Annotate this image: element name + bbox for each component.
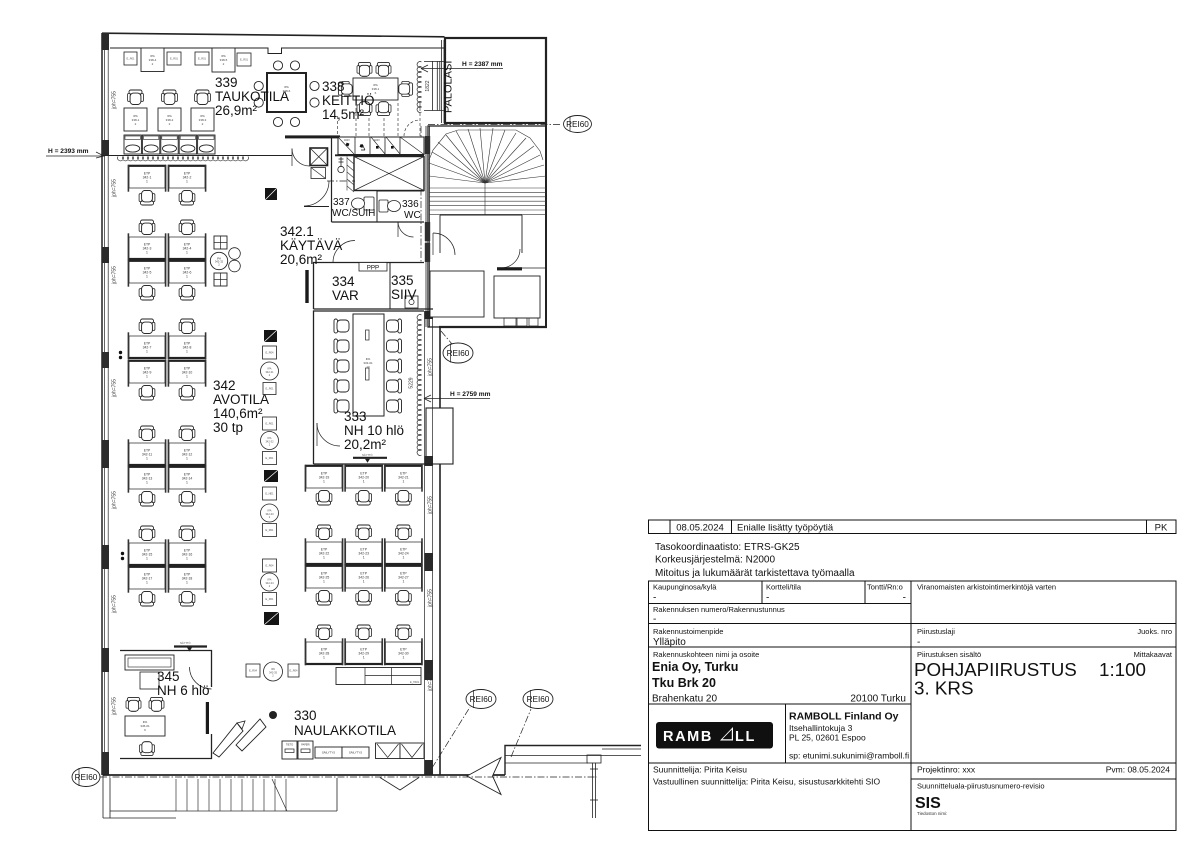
svg-text:REI60: REI60 [527, 695, 550, 704]
svg-text:E_HK01: E_HK01 [410, 681, 420, 684]
svg-text:REI60: REI60 [75, 773, 98, 782]
svg-text:337: 337 [333, 197, 350, 208]
svg-text:1: 1 [186, 375, 188, 379]
svg-text:H = 2387 mm: H = 2387 mm [462, 61, 503, 68]
svg-text:1: 1 [363, 480, 365, 484]
svg-text:1: 1 [402, 656, 404, 660]
svg-text:Vastuullinen suunnittelija: Pi: Vastuullinen suunnittelija: Pirita Keisu… [653, 777, 880, 787]
svg-text:Rakennuskohteen nimi ja osoite: Rakennuskohteen nimi ja osoite [653, 650, 759, 659]
svg-text:1: 1 [402, 580, 404, 584]
svg-text:Mittakaavat: Mittakaavat [1134, 650, 1173, 659]
svg-text:PPP: PPP [367, 264, 379, 271]
svg-text:1: 1 [146, 275, 148, 279]
svg-text:1: 1 [363, 556, 365, 560]
svg-text:Itsehallintokuja 3: Itsehallintokuja 3 [789, 723, 853, 733]
svg-text:KÄYTÄVÄ: KÄYTÄVÄ [280, 238, 342, 253]
svg-text:E_R04: E_R04 [249, 669, 257, 673]
svg-text:NH 6 hlö: NH 6 hlö [157, 683, 210, 698]
svg-text:1: 1 [146, 481, 148, 485]
svg-text:Ylläpito: Ylläpito [653, 637, 686, 648]
svg-text:jph=755: jph=755 [428, 673, 434, 692]
svg-text:Tasokoordinaatisto: ETRS-GK25: Tasokoordinaatisto: ETRS-GK25 [655, 542, 800, 553]
svg-text:NAULAKKOTILA: NAULAKKOTILA [294, 723, 396, 738]
svg-text:jph=755: jph=755 [112, 595, 118, 614]
svg-text:Rakennustoimenpide: Rakennustoimenpide [653, 627, 723, 636]
svg-text:339: 339 [215, 75, 238, 90]
svg-text:1: 1 [146, 557, 148, 561]
svg-text:Juoks. nro: Juoks. nro [1137, 627, 1172, 636]
svg-text:E_R01: E_R01 [266, 387, 274, 391]
svg-text:Piirustuksen sisältö: Piirustuksen sisältö [917, 650, 981, 659]
svg-text:10: 10 [366, 365, 370, 369]
svg-text:26,9m²: 26,9m² [215, 103, 258, 118]
svg-text:1: 1 [323, 480, 325, 484]
svg-text:345: 345 [157, 669, 180, 684]
svg-text:Brahenkatu 20: Brahenkatu 20 [652, 694, 717, 705]
svg-text:jph=755: jph=755 [428, 358, 434, 377]
svg-text:E_NE1: E_NE1 [265, 492, 274, 496]
svg-text:5229: 5229 [409, 377, 415, 388]
svg-text:E_R04: E_R04 [266, 351, 274, 355]
svg-text:IPA: IPA [268, 509, 272, 513]
svg-text:SIS: SIS [915, 795, 941, 812]
svg-text:IPA: IPA [271, 667, 275, 671]
svg-text:1: 1 [146, 251, 148, 255]
svg-text:334: 334 [332, 274, 355, 289]
svg-text:LL: LL [735, 729, 756, 745]
svg-text:20,6m²: 20,6m² [280, 252, 323, 267]
svg-text:-: - [766, 593, 769, 604]
svg-text:Pvm: 08.05.2024: Pvm: 08.05.2024 [1106, 765, 1171, 775]
svg-text:E_R01: E_R01 [266, 422, 274, 426]
svg-text:20,2m²: 20,2m² [344, 437, 387, 452]
svg-text:1: 1 [186, 457, 188, 461]
svg-text:1: 1 [186, 350, 188, 354]
svg-text:NÄYTTÖ: NÄYTTÖ [362, 453, 373, 457]
svg-text:PK: PK [1155, 523, 1168, 534]
svg-text:WC: WC [404, 210, 421, 221]
svg-text:1: 1 [402, 556, 404, 560]
svg-text:E_R01: E_R01 [266, 528, 274, 532]
svg-text:SÄILYTYS: SÄILYTYS [349, 751, 362, 755]
svg-text:WC/SUIH: WC/SUIH [332, 208, 375, 219]
svg-text:RAMBOLL Finland Oy: RAMBOLL Finland Oy [789, 711, 899, 723]
svg-text:jph=755: jph=755 [112, 697, 118, 716]
svg-text:30 tp: 30 tp [213, 420, 243, 435]
svg-text:NÄYTTÖ: NÄYTTÖ [180, 641, 191, 645]
svg-text:1: 1 [186, 275, 188, 279]
svg-text:1: 1 [323, 556, 325, 560]
svg-text:Tku Brk 20: Tku Brk 20 [652, 676, 716, 690]
svg-text:-: - [917, 637, 920, 648]
svg-text:1: 1 [146, 375, 148, 379]
svg-text:14,5m²: 14,5m² [322, 107, 365, 122]
svg-text:Enialle lisätty työpöytiä: Enialle lisätty työpöytiä [737, 523, 834, 534]
svg-text:jph=755: jph=755 [112, 179, 118, 198]
svg-text:NH 10 hlö: NH 10 hlö [344, 423, 404, 438]
svg-text:E_R01: E_R01 [170, 57, 178, 61]
svg-text:140,6m²: 140,6m² [213, 406, 263, 421]
svg-text:Viranomaisten arkistointimerki: Viranomaisten arkistointimerkintöjä vart… [917, 583, 1056, 592]
svg-text:jph=755: jph=755 [112, 266, 118, 285]
svg-text:jph=755: jph=755 [112, 379, 118, 398]
svg-text:Rakennuksen numero/Rakennustun: Rakennuksen numero/Rakennustunnus [653, 605, 785, 614]
svg-text:1: 1 [186, 557, 188, 561]
svg-text:SÄILYTYS: SÄILYTYS [322, 751, 335, 755]
svg-text:SIIV: SIIV [391, 287, 417, 302]
svg-text:IPA: IPA [268, 436, 272, 440]
svg-text:H = 2759 mm: H = 2759 mm [450, 391, 491, 398]
svg-text:1: 1 [363, 580, 365, 584]
svg-text:1:100: 1:100 [1099, 659, 1146, 680]
svg-text:1822: 1822 [425, 80, 431, 91]
svg-text:jph=755: jph=755 [428, 589, 434, 608]
svg-text:1: 1 [186, 251, 188, 255]
svg-text:jph=755: jph=755 [428, 496, 434, 515]
svg-text:1: 1 [323, 656, 325, 660]
svg-text:E_R04: E_R04 [290, 669, 298, 673]
svg-text:1: 1 [146, 350, 148, 354]
svg-text:REI60: REI60 [566, 120, 589, 129]
svg-text:1: 1 [402, 480, 404, 484]
svg-text:KEITTIÖ: KEITTIÖ [322, 93, 375, 108]
svg-text:Suunnittelija: Pirita Keisu: Suunnittelija: Pirita Keisu [653, 765, 747, 775]
svg-text:20100 Turku: 20100 Turku [850, 694, 906, 705]
svg-text:342.1: 342.1 [280, 224, 314, 239]
svg-text:IPA: IPA [268, 578, 272, 582]
svg-text:E_R01: E_R01 [266, 597, 274, 601]
svg-text:PALOLASI: PALOLASI [443, 61, 455, 113]
svg-text:1: 1 [146, 581, 148, 585]
svg-text:sp: etunimi.sukunimi@ramboll.f: sp: etunimi.sukunimi@ramboll.fi [789, 751, 909, 761]
svg-text:REI60: REI60 [470, 695, 493, 704]
svg-text:Projektinro: xxx: Projektinro: xxx [917, 765, 976, 775]
svg-text:Tontti/Rn:o: Tontti/Rn:o [867, 583, 903, 592]
svg-text:1: 1 [146, 180, 148, 184]
svg-text:1: 1 [186, 581, 188, 585]
svg-text:PAPERI: PAPERI [301, 744, 310, 747]
svg-text:1: 1 [186, 180, 188, 184]
svg-text:AVOTILA: AVOTILA [213, 392, 269, 407]
svg-text:Enia Oy, Turku: Enia Oy, Turku [652, 660, 738, 674]
svg-text:E_R04: E_R04 [266, 564, 274, 568]
svg-text:08.05.2024: 08.05.2024 [676, 523, 724, 534]
svg-text:333: 333 [344, 409, 367, 424]
svg-text:335: 335 [391, 273, 414, 288]
svg-text:342: 342 [213, 378, 236, 393]
svg-text:330: 330 [294, 708, 317, 723]
svg-text:1: 1 [186, 481, 188, 485]
svg-text:1: 1 [146, 457, 148, 461]
svg-text:338: 338 [322, 79, 345, 94]
svg-text:jph=755: jph=755 [112, 91, 118, 110]
svg-text:-: - [653, 614, 656, 625]
svg-text:336: 336 [402, 199, 419, 210]
svg-text:1: 1 [323, 580, 325, 584]
svg-text:Mitoitus ja lukumäärät tarkist: Mitoitus ja lukumäärät tarkistettava työ… [655, 568, 855, 579]
svg-text:TIETO: TIETO [286, 744, 293, 747]
svg-text:Piirustuslaji: Piirustuslaji [917, 627, 955, 636]
svg-text:400V: 400V [344, 139, 350, 142]
svg-text:3. KRS: 3. KRS [914, 678, 974, 699]
svg-text:REI60: REI60 [447, 349, 470, 358]
svg-text:Kortteli/tila: Kortteli/tila [766, 583, 802, 592]
svg-text:jph=755: jph=755 [112, 491, 118, 510]
svg-text:Suunnitteluala-piirustusnumero: Suunnitteluala-piirustusnumero-revisio [917, 782, 1045, 791]
svg-text:400V: 400V [374, 139, 380, 142]
svg-text:TAUKOTILA: TAUKOTILA [215, 89, 289, 104]
svg-text:IPA: IPA [268, 367, 272, 371]
svg-text:E_R01: E_R01 [127, 57, 135, 61]
svg-text:RAMB: RAMB [663, 729, 713, 745]
svg-text:Tiedoston nimi:: Tiedoston nimi: [917, 811, 947, 816]
svg-text:-: - [903, 593, 906, 604]
svg-text:PL 25, 02601 Espoo: PL 25, 02601 Espoo [789, 733, 866, 743]
svg-text:Korkeusjärjestelmä: N2000: Korkeusjärjestelmä: N2000 [655, 555, 775, 566]
svg-text:VAR: VAR [332, 288, 359, 303]
svg-text:E_R01: E_R01 [198, 57, 206, 61]
svg-text:1: 1 [363, 656, 365, 660]
svg-text:E_R01: E_R01 [240, 58, 248, 62]
svg-text:E_R01: E_R01 [266, 456, 274, 460]
svg-text:-: - [653, 593, 656, 604]
svg-text:Kaupunginosa/kylä: Kaupunginosa/kylä [653, 583, 717, 592]
svg-text:H = 2393 mm: H = 2393 mm [48, 148, 89, 155]
